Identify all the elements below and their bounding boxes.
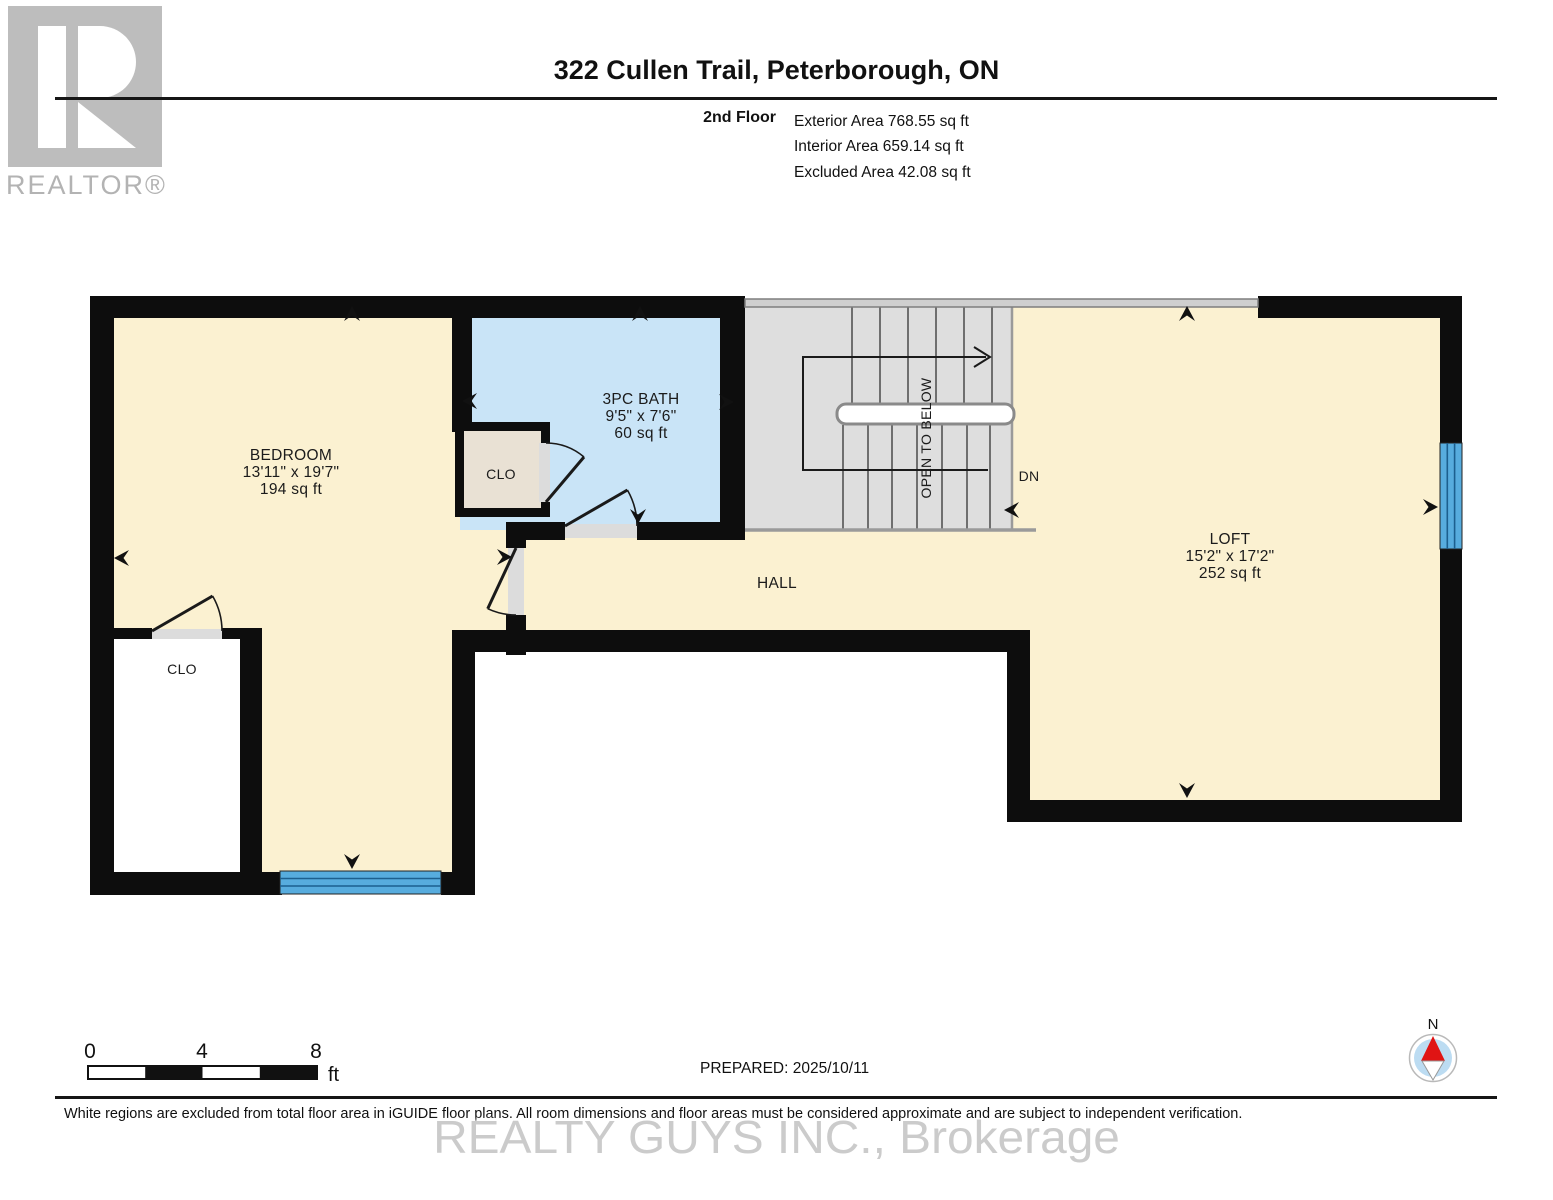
stair-direction-arrowhead: [974, 347, 990, 367]
bath-closet-floor: [464, 431, 541, 508]
bath-entry-door: [565, 490, 637, 526]
bath-name: 3PC BATH: [602, 391, 679, 408]
arrow-bath-left: [462, 393, 477, 409]
header-divider: [55, 97, 1497, 100]
wall-bedroom-bath-divider: [452, 296, 472, 432]
wall-loft-bottom: [1007, 800, 1462, 822]
stair-direction-line: [803, 357, 988, 470]
arrow-bath-right: [719, 394, 734, 410]
wall-top-west: [90, 296, 745, 318]
compass-needle-north: [1421, 1036, 1445, 1061]
arrow-bedroom-left: [114, 550, 129, 566]
scale-tick-0: 0: [84, 1040, 96, 1063]
wall-hall-bottom: [452, 630, 1030, 652]
loft-area: 252 sq ft: [1199, 565, 1262, 582]
bedroom-closet-door-sill: [152, 629, 222, 639]
arrow-stairs-down-left: [1004, 502, 1019, 518]
compass-north-label: N: [1428, 1016, 1439, 1033]
stair-treads-lower: [843, 425, 990, 529]
bath-closet-door: [546, 443, 584, 502]
loft-window: [1440, 443, 1462, 549]
wall-loft-right-upper: [1440, 296, 1462, 443]
scale-bar-outline: [88, 1066, 317, 1079]
page-title: 322 Cullen Trail, Peterborough, ON: [0, 55, 1553, 86]
interior-floor-fill: [100, 300, 1455, 888]
bedroom-dims: 13'11" x 19'7": [243, 464, 340, 481]
arrow-bedroom-down: [344, 854, 360, 869]
stair-treads-upper: [852, 307, 992, 403]
open-to-below-label: OPEN TO BELOW: [918, 377, 934, 498]
excluded-area: Excluded Area 42.08 sq ft: [794, 160, 971, 185]
scale-bar-segment: [145, 1066, 202, 1079]
wall-bath-closet-box: [455, 422, 550, 517]
compass-ring: [1410, 1035, 1457, 1082]
wall-bedroom-right-lower: [452, 630, 475, 895]
realtor-logo-graphic: [8, 6, 162, 202]
floor-plan-page: { "header": { "logo_letter": "R", "logo_…: [0, 0, 1553, 1200]
wall-bedroom-door-hinge-post: [506, 522, 526, 548]
stairs-floor-fill: [743, 303, 1013, 531]
wall-bedroom-bottom-west: [90, 872, 282, 895]
wall-left: [90, 296, 114, 895]
door-sills: [152, 443, 637, 639]
floor-area-summary: Exterior Area 768.55 sq ft Interior Area…: [794, 109, 971, 185]
bath-closet-label: CLO: [486, 466, 516, 482]
bedroom-closet-excluded-area: [114, 639, 240, 872]
arrow-loft-right: [1423, 499, 1438, 515]
wall-bedroom-door-lower-post: [506, 615, 526, 655]
bedroom-entry-door: [488, 548, 516, 615]
realtor-logo: [8, 6, 162, 202]
brokerage-watermark: REALTY GUYS INC., Brokerage: [0, 1110, 1553, 1164]
windows: [280, 443, 1462, 894]
bath-area: 60 sq ft: [614, 425, 668, 442]
wall-bath-right: [720, 296, 745, 537]
scale-tick-8: 8: [310, 1040, 322, 1063]
wall-closet-top-west: [90, 628, 152, 639]
bedroom-area: 194 sq ft: [260, 481, 323, 498]
footer-divider: [55, 1096, 1497, 1099]
bath-floor-fill: [460, 305, 735, 530]
arrow-loft-down: [1179, 783, 1195, 798]
scale-bar: 0 4 8 ft: [84, 1040, 339, 1086]
scale-tick-4: 4: [196, 1040, 208, 1063]
bedroom-door-sill: [508, 548, 524, 615]
arrow-bedroom-door-right: [497, 549, 512, 565]
exterior-area: Exterior Area 768.55 sq ft: [794, 109, 971, 134]
bedroom-name: BEDROOM: [250, 447, 332, 464]
arrow-bedroom-up: [344, 306, 360, 321]
bedroom-closet-door: [152, 596, 222, 631]
room-fills: [100, 300, 1455, 888]
compass: N: [1410, 1016, 1457, 1082]
loft-dims: 15'2" x 17'2": [1186, 548, 1275, 565]
staircase: [745, 303, 1036, 530]
realtor-logo-r-stem: [38, 26, 66, 148]
wall-bedroom-bottom-east: [441, 872, 475, 895]
compass-needle-south: [1422, 1061, 1444, 1080]
interior-area: Interior Area 659.14 sq ft: [794, 134, 971, 159]
stairs-down-label: DN: [1019, 468, 1040, 484]
bedroom-window: [280, 871, 441, 894]
scale-bar-segment: [260, 1066, 317, 1079]
bedroom-closet-label: CLO: [167, 661, 197, 677]
room-labels: BEDROOM 13'11" x 19'7" 194 sq ft 3PC BAT…: [167, 377, 1274, 677]
wall-loft-right-lower: [1440, 549, 1462, 822]
arrow-bath-up: [632, 306, 648, 321]
wall-stairwell-thin: [745, 299, 1258, 307]
arrow-loft-up: [1179, 306, 1195, 321]
wall-bath-bottom-east: [637, 522, 745, 540]
floor-plan-drawing: BEDROOM 13'11" x 19'7" 194 sq ft 3PC BAT…: [0, 0, 1553, 1200]
wall-loft-left-lower: [1007, 630, 1030, 822]
wall-closet-top-east: [222, 628, 262, 639]
loft-name: LOFT: [1210, 531, 1251, 548]
walls: [90, 296, 1462, 895]
scale-unit: ft: [328, 1064, 340, 1086]
direction-arrows: [114, 306, 1438, 869]
hall-label: HALL: [757, 575, 797, 592]
wall-loft-top: [1258, 296, 1462, 318]
bath-closet-door-sill: [539, 443, 550, 502]
bath-dims: 9'5" x 7'6": [605, 408, 676, 425]
wall-bath-bottom-west: [513, 522, 565, 540]
door-swings: [152, 443, 637, 631]
bath-door-sill: [565, 524, 637, 538]
wall-closet-right: [240, 628, 262, 895]
compass-face: [1414, 1039, 1452, 1077]
prepared-date: PREPARED: 2025/10/11: [700, 1060, 869, 1078]
stair-railing: [837, 404, 1014, 424]
floor-name: 2nd Floor: [560, 109, 776, 127]
arrow-bath-door-down: [630, 509, 646, 524]
